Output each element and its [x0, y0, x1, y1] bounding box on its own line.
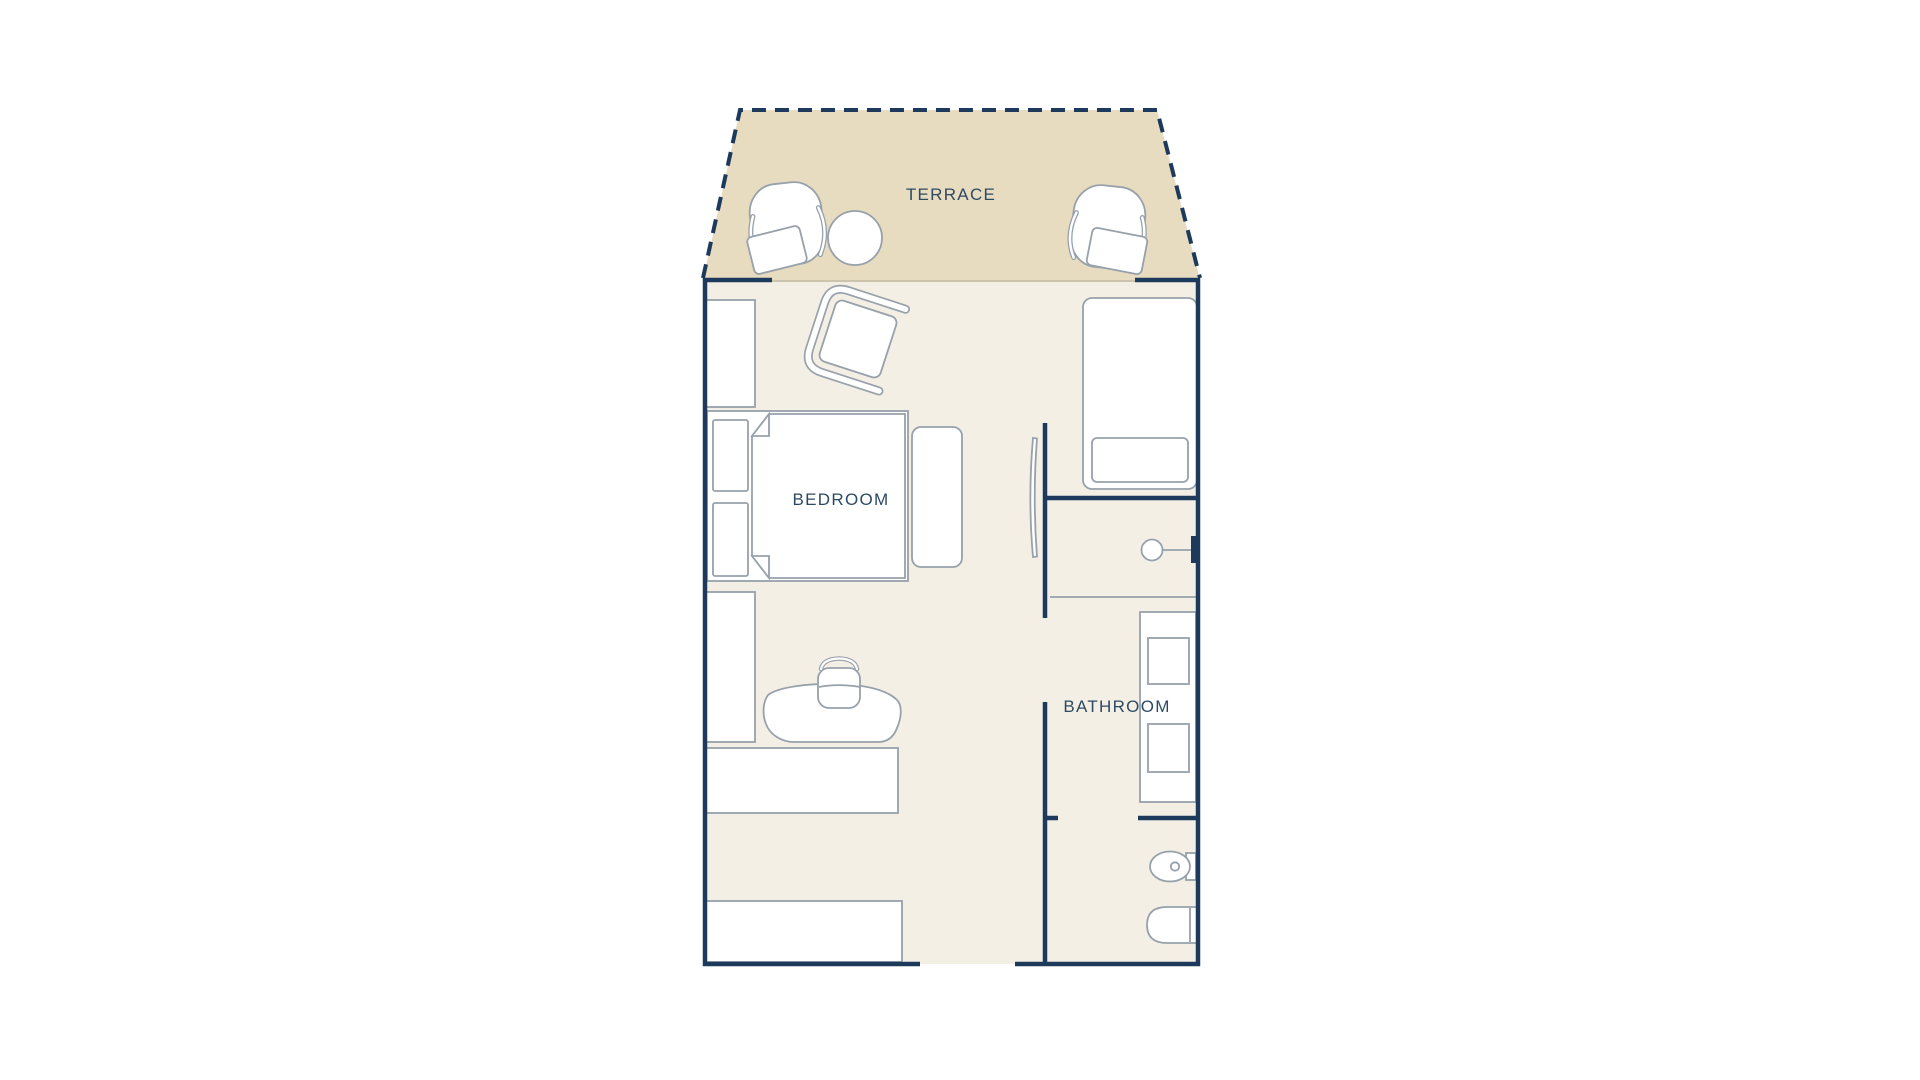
toilet: [1150, 852, 1196, 882]
bed-pillow-top: [713, 420, 748, 491]
wardrobe-upper: [706, 300, 755, 407]
sink-basin-lower: [1148, 724, 1189, 772]
wardrobe-lower: [706, 592, 755, 742]
toilet-flush: [1171, 862, 1179, 870]
sink-basin-upper: [1148, 638, 1189, 684]
pouf-basket: [818, 668, 860, 708]
bidet: [1147, 907, 1196, 943]
daybed-pillow: [1092, 438, 1188, 482]
bedroom-label: BEDROOM: [793, 490, 890, 509]
shower-head: [1142, 540, 1163, 561]
bed-pillow-bottom: [713, 503, 748, 576]
floor-plan-page: TERRACE BEDROOM BATHROOM: [0, 0, 1920, 1080]
bathroom-label: BATHROOM: [1063, 697, 1170, 716]
floor-plan-drawing: TERRACE BEDROOM BATHROOM: [0, 0, 1920, 1080]
daybed: [1083, 298, 1197, 489]
shower-wall-stub: [1191, 536, 1200, 563]
terrace-label: TERRACE: [906, 185, 996, 204]
desk: [706, 748, 898, 813]
terrace-side-table: [828, 211, 882, 265]
bed-end-bench: [912, 427, 962, 567]
luggage-bench: [705, 901, 902, 962]
